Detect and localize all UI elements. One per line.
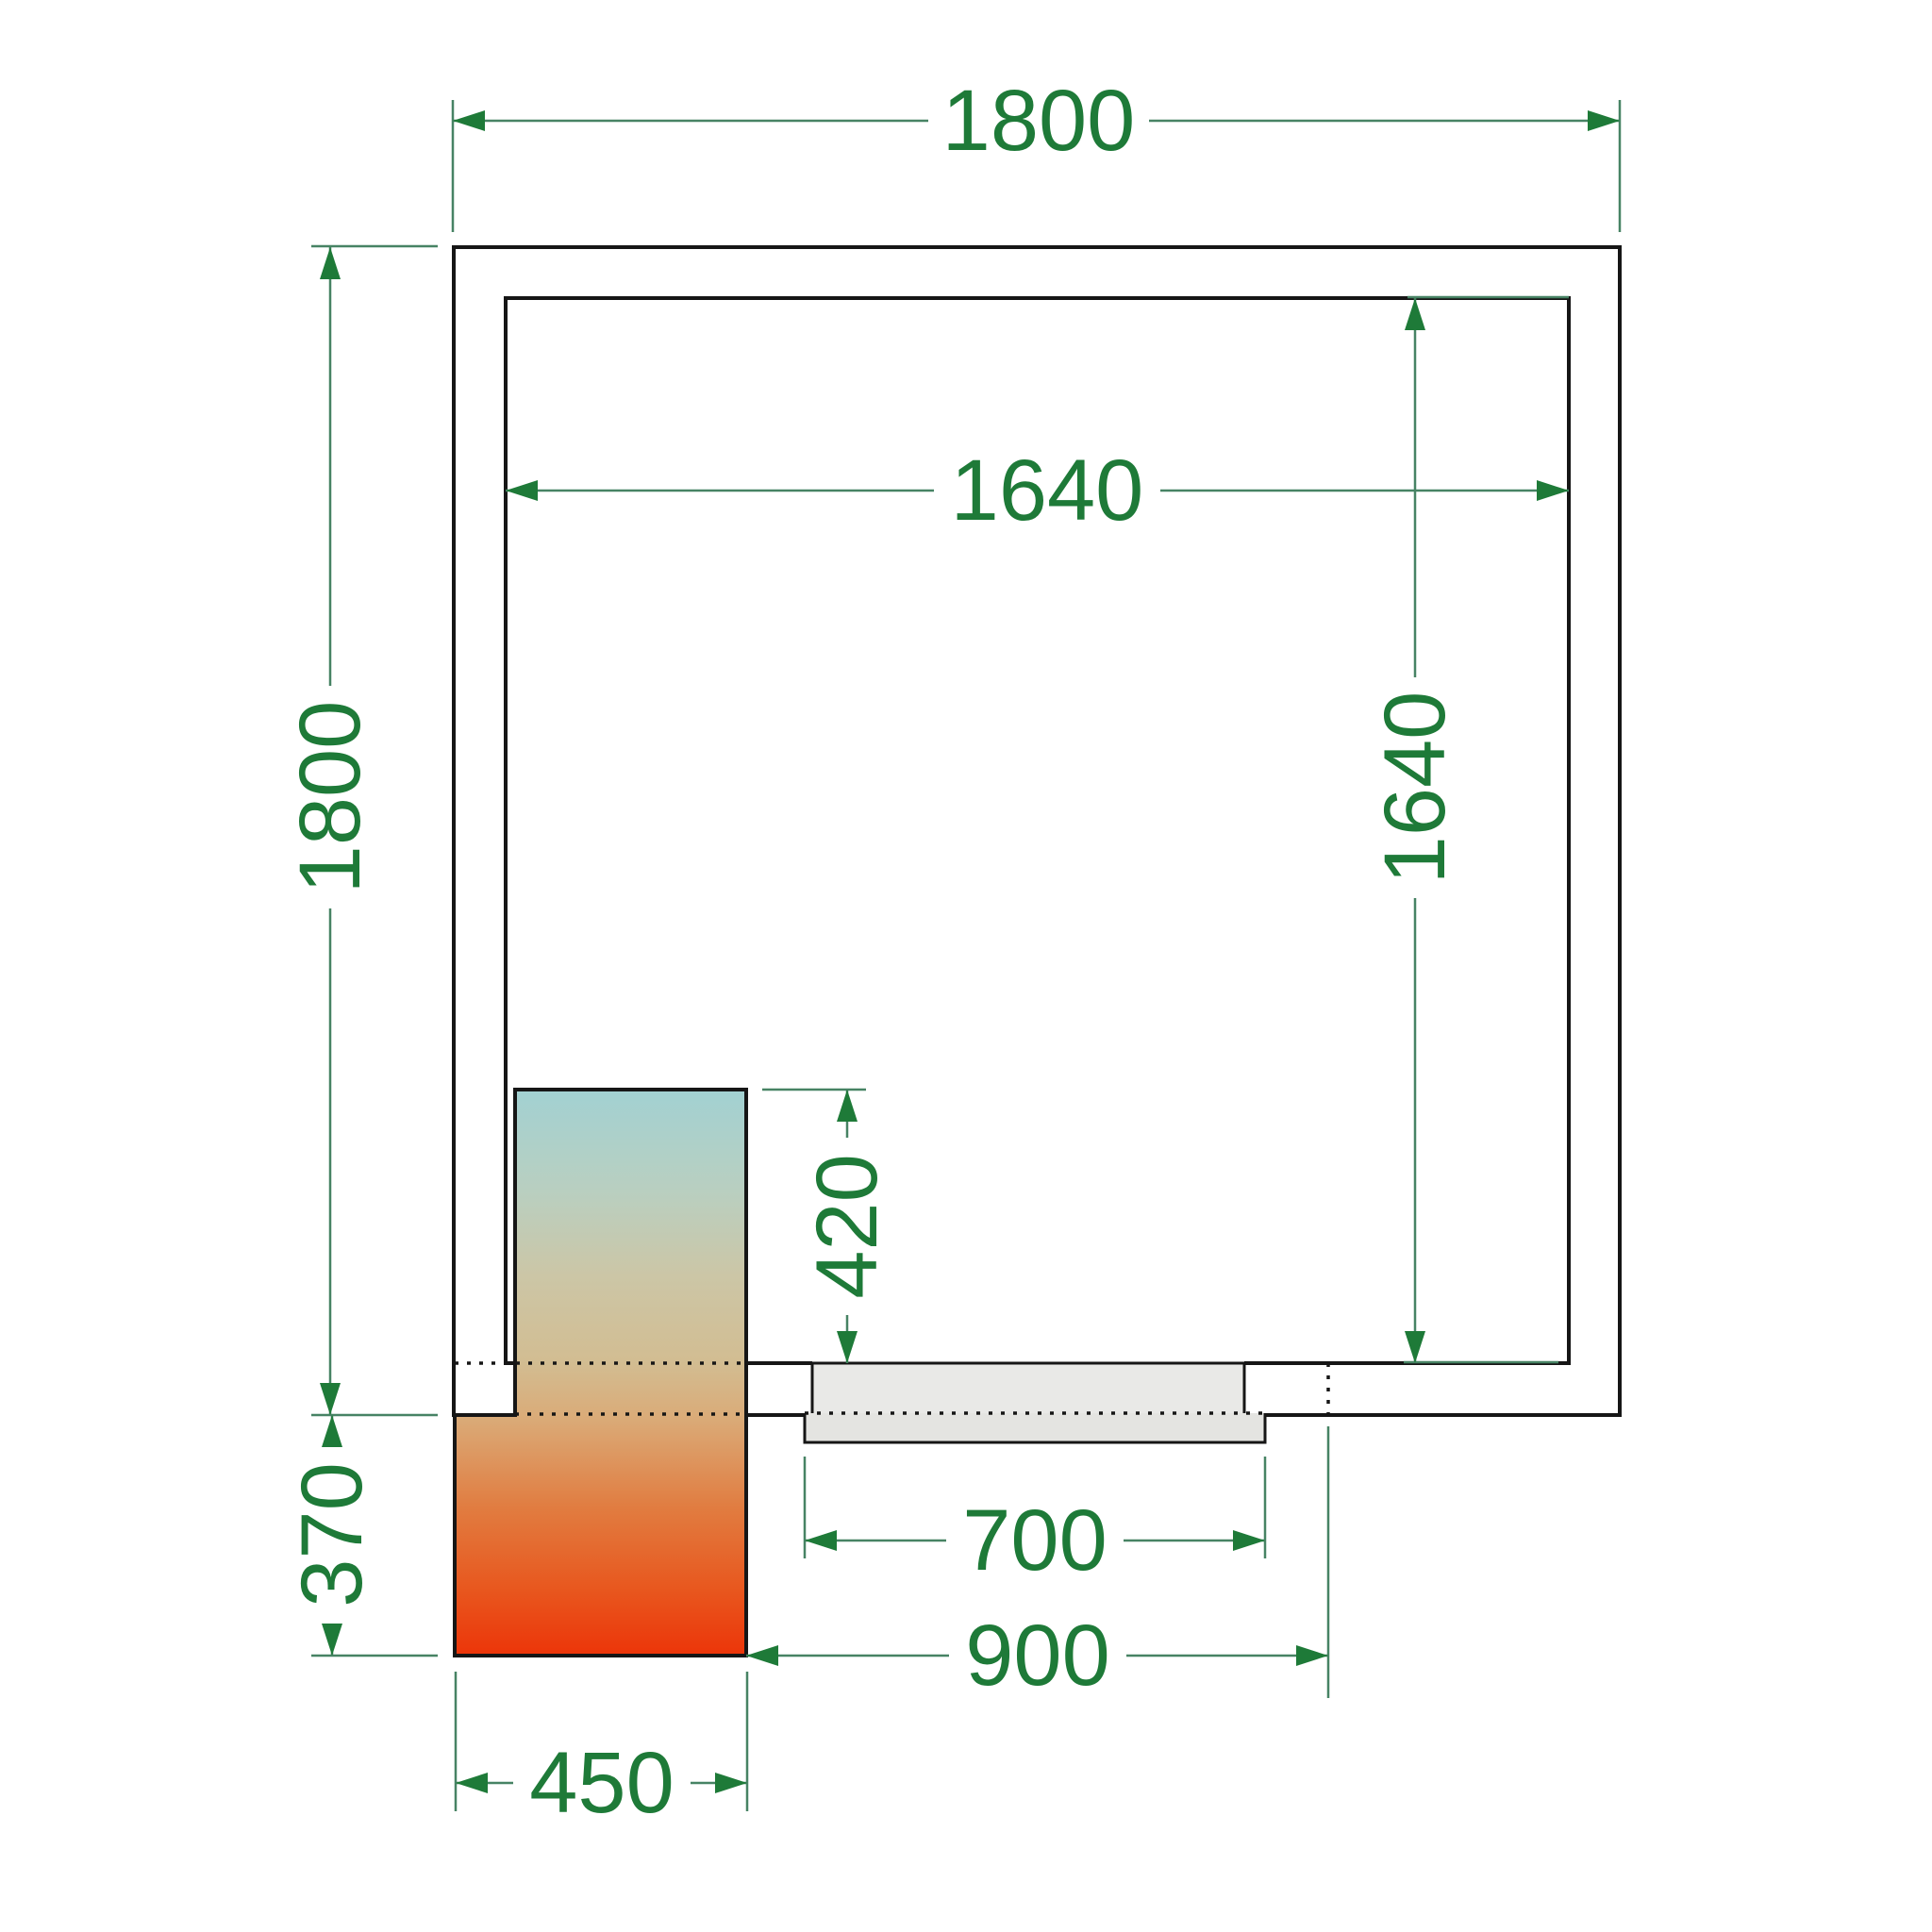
dim-door-clearance-width-label: 900 xyxy=(965,1607,1110,1704)
dim-inner-width-label: 1640 xyxy=(951,442,1144,539)
dim-door-leaf-width-label: 700 xyxy=(962,1492,1108,1589)
dim-unit-width-label: 450 xyxy=(529,1735,675,1831)
dim-unit-inside-depth-label: 420 xyxy=(799,1154,895,1299)
dim-unit-outside-depth-label: 370 xyxy=(284,1462,380,1607)
dim-inner-height-label: 1640 xyxy=(1367,691,1463,885)
door-frame-infill xyxy=(812,1363,1244,1413)
dim-outer-height-label: 1800 xyxy=(282,701,378,894)
dim-outer-width-label: 1800 xyxy=(942,73,1136,169)
door-leaf xyxy=(805,1413,1265,1442)
cold-room-floor-plan: 1800 1800 1640 1640 420 xyxy=(0,0,1932,1932)
